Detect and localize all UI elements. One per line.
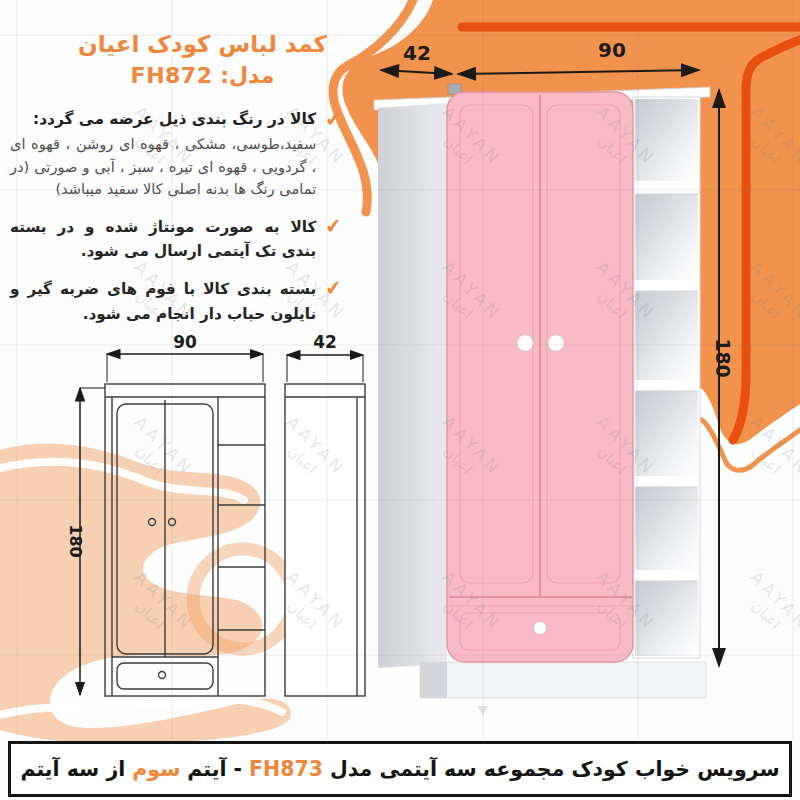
wardrobe-base-plinth	[420, 662, 706, 698]
footer-text-start: سرویس خواب کودک مجموعه سه آیتمی مدل	[330, 757, 780, 781]
dim-front-height-label: 180	[66, 524, 85, 557]
footer-text-end: از سه آیتم	[20, 757, 125, 781]
infographic-page: AAYANاعیانAAYANاعیانAAYANاعیانAAYANاعیان…	[0, 0, 800, 800]
dim-top-width-label: 90	[598, 38, 626, 62]
dim-height-3d-label: 180	[712, 338, 734, 378]
footer-banner: سرویس خواب کودک مجموعه سه آیتمی مدل FH87…	[8, 741, 792, 797]
wardrobe-render	[374, 84, 710, 698]
product-title: کمد لباس کودک اعیان	[55, 30, 350, 60]
bullet-colors-body: سفید،طوسی، مشکی ، قهوه ای روشن ، قهوه ای…	[10, 133, 316, 200]
product-title-block: کمد لباس کودک اعیان مدل: FH872	[55, 30, 350, 88]
check-icon: ✔	[324, 215, 343, 237]
bullet-packaging-text: بسته بندی کالا با فوم های ضربه گیر و نای…	[10, 277, 316, 326]
footer-text-mid: آیتم	[187, 757, 226, 781]
bullet-colors-header: کالا در رنگ بندی ذیل عرضه می گردد:	[10, 108, 316, 130]
product-model: مدل: FH872	[55, 63, 350, 88]
door-knob	[517, 335, 533, 351]
list-item: ✔ کالا در رنگ بندی ذیل عرضه می گردد: سفی…	[10, 108, 342, 201]
list-item: ✔ کالا به صورت مونتاژ شده و در بسته بندی…	[10, 215, 342, 264]
check-icon: ✔	[324, 108, 343, 130]
footer-model-code: FH873	[249, 757, 323, 781]
bullet-assembly-text: کالا به صورت مونتاژ شده و در بسته بندی ت…	[10, 215, 316, 264]
footer-dash: -	[233, 757, 242, 781]
door-knob	[548, 335, 564, 351]
feature-list: ✔ کالا در رنگ بندی ذیل عرضه می گردد: سفی…	[10, 108, 342, 340]
list-item: ✔ بسته بندی کالا با فوم های ضربه گیر و ن…	[10, 277, 342, 326]
model-label: مدل:	[220, 63, 274, 88]
wardrobe-shelf-column	[633, 97, 700, 658]
model-code: FH872	[131, 63, 213, 88]
drawer-knob	[533, 621, 547, 635]
footer-highlight: سوم	[132, 757, 180, 781]
dim-top-depth-label: 42	[403, 41, 431, 65]
check-icon: ✔	[324, 278, 343, 300]
wardrobe-left-side-panel	[378, 103, 447, 668]
